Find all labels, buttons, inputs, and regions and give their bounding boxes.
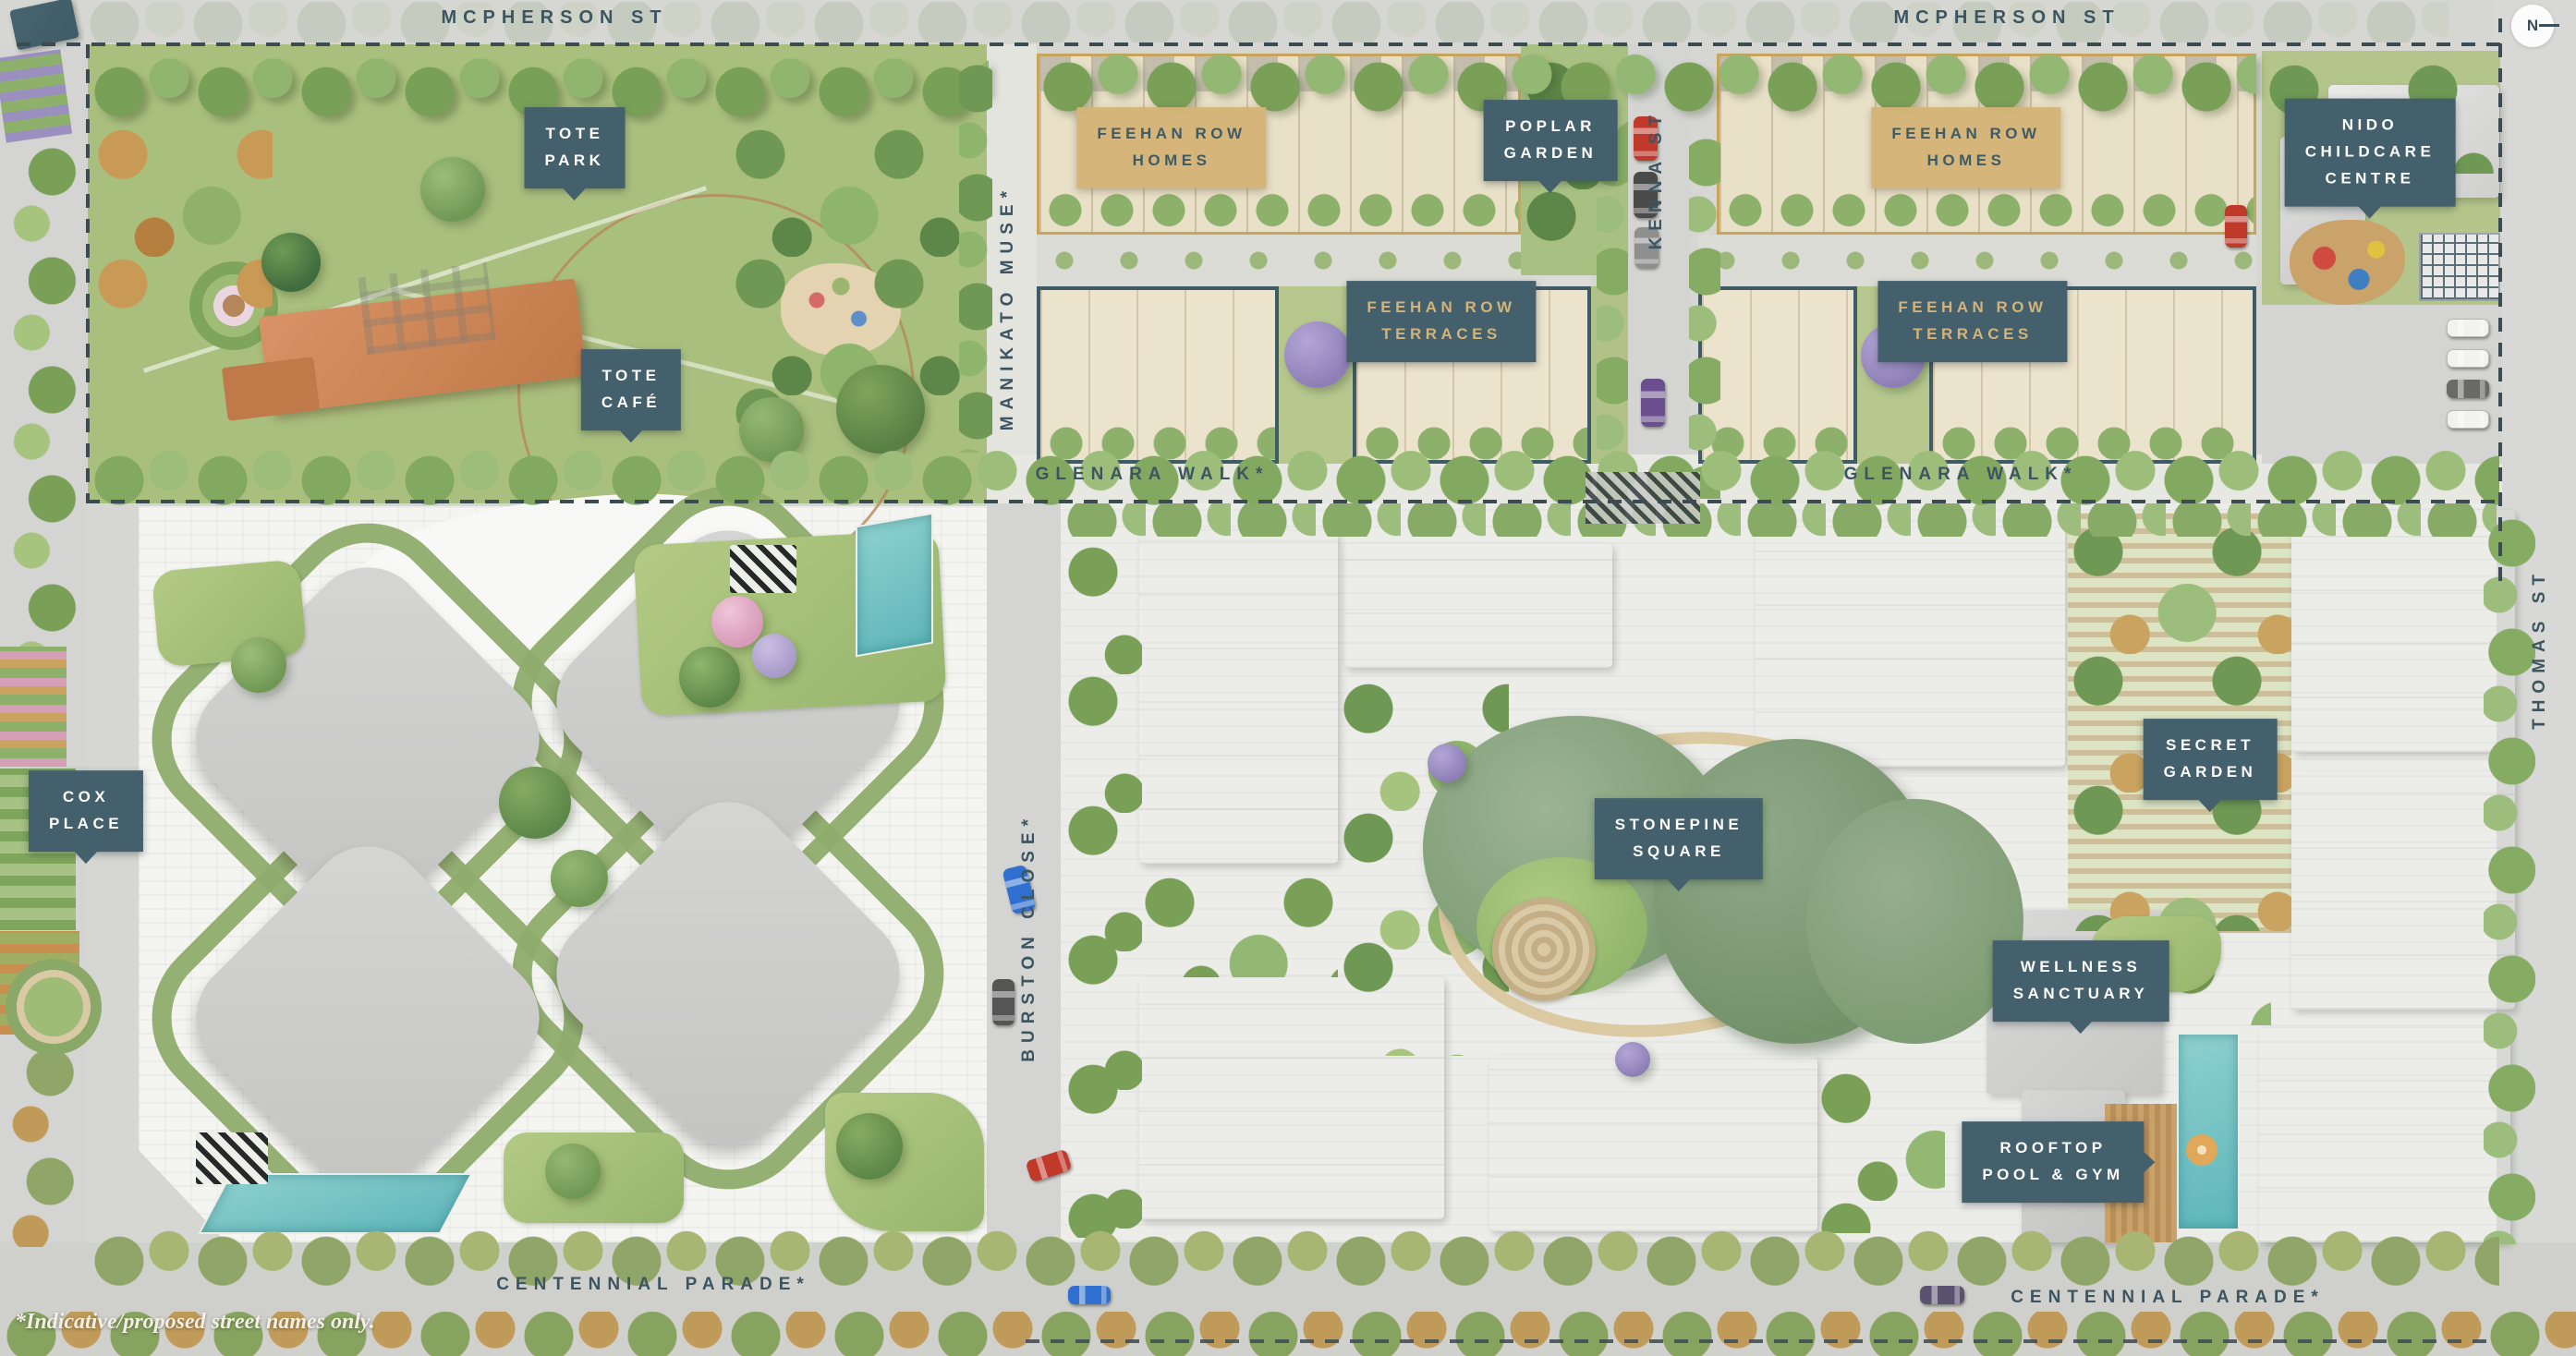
- street-mcpherson-right: MCPHERSON ST: [1893, 7, 2120, 29]
- cox-flower-garden: [0, 647, 67, 767]
- label-feehan-homes-left: FEEHAN ROW HOMES: [1076, 107, 1266, 188]
- thomas-street-trees: [2484, 510, 2535, 1244]
- car-dark: [992, 979, 1015, 1025]
- street-names-footnote: *Indicative/proposed street names only.: [15, 1310, 375, 1335]
- label-nido-childcare: NIDO CHILDCARE CENTRE: [2285, 99, 2456, 207]
- boundary-dash-top: [17, 42, 2500, 46]
- label-feehan-homes-right: FEEHAN ROW HOMES: [1871, 107, 2060, 188]
- kenna-trees-east: [1689, 129, 1720, 499]
- pergola-north: [730, 545, 796, 593]
- campus-building-1: [1139, 531, 1338, 864]
- kenna-trees-west: [1597, 129, 1628, 499]
- label-feehan-terraces-left: FEEHAN ROW TERRACES: [1346, 281, 1536, 362]
- courtyard-tree: [551, 850, 608, 907]
- car-purple: [1641, 379, 1665, 427]
- boundary-dash-left: [86, 44, 90, 502]
- park-tree: [420, 157, 485, 222]
- rooftop-pool: [2177, 1033, 2240, 1230]
- left-edge-trees: [7, 139, 89, 647]
- label-stonepine-square: STONEPINE SQUARE: [1595, 798, 1763, 879]
- centennial-south-tree-row: [0, 1312, 2576, 1356]
- nido-solar-panels: [2419, 233, 2500, 301]
- label-tote-cafe: TOTE CAFÉ: [581, 349, 681, 430]
- purple-shrub: [1428, 744, 1466, 782]
- jacaranda-tree: [1284, 321, 1351, 388]
- campus-building-5: [1756, 522, 2065, 767]
- compass-n-letter: N: [2527, 17, 2538, 35]
- car-red: [2225, 205, 2247, 248]
- courtyard-tree: [545, 1144, 601, 1199]
- courtyard-tree: [231, 637, 286, 693]
- purple-shrub: [1615, 1042, 1650, 1077]
- east-building-1: [2291, 510, 2515, 752]
- central-garden-west: [1139, 866, 1338, 977]
- courtyard-tree: [499, 767, 571, 839]
- label-cox-place: COX PLACE: [29, 770, 143, 852]
- street-glenara-left: GLENARA WALK*: [1036, 465, 1270, 485]
- street-thomas: THOMAS ST: [2530, 568, 2550, 730]
- street-centennial-left: CENTENNIAL PARADE*: [496, 1275, 810, 1295]
- left-edge-trees-south: [7, 1039, 85, 1247]
- backyard-trees: [1719, 184, 2254, 232]
- feehan-mews-left: [1037, 235, 1591, 286]
- feehan-terraces-left-a: [1037, 286, 1279, 464]
- purple-blossom-tree: [752, 634, 796, 678]
- backyard-trees: [1039, 184, 1518, 232]
- parked-car-white: [2447, 319, 2489, 337]
- planting-bed-top: [0, 49, 72, 142]
- palm-tree: [261, 233, 321, 292]
- feehan-mews-right: [1698, 235, 2256, 286]
- courtyard-tree: [836, 1113, 903, 1180]
- pink-blossom-tree: [711, 596, 763, 648]
- masterplan-page: { "map_title": "Residential development …: [0, 0, 2576, 1356]
- stonepine-canopy: [1806, 799, 2023, 1044]
- street-centennial-right: CENTENNIAL PARADE*: [2011, 1288, 2325, 1308]
- label-rooftop-pool-gym: ROOFTOP POOL & GYM: [1962, 1121, 2144, 1203]
- kenna-raised-crossing: [1586, 472, 1700, 524]
- east-building-2: [2291, 771, 2515, 1010]
- label-poplar-garden: POPLAR GARDEN: [1484, 100, 1618, 181]
- central-garden-south: [1816, 1062, 1945, 1233]
- swimming-pool-north: [856, 513, 933, 658]
- campus-north-tree-row: [1061, 503, 2497, 537]
- north-compass: N: [2511, 5, 2554, 47]
- cafe-terrace-furniture: [358, 262, 495, 355]
- burston-east-garden: [1063, 536, 1142, 1238]
- street-manikato-muse: MANIKATO MUSE*: [998, 185, 1018, 430]
- pool-umbrella: [2186, 1134, 2218, 1166]
- street-glenara-right: GLENARA WALK*: [1844, 465, 2078, 485]
- parked-car-dark: [2447, 380, 2489, 398]
- boundary-dash-glenara: [86, 500, 2499, 503]
- park-autumn-cluster: [92, 118, 273, 326]
- label-feehan-terraces-right: FEEHAN ROW TERRACES: [1877, 281, 2067, 362]
- pergola-south: [196, 1132, 268, 1184]
- centennial-north-tree-row: [88, 1229, 2499, 1288]
- glenara-walk-tree-row: [88, 449, 2499, 506]
- street-burston-close: BURSTON CLOSE*: [1019, 813, 1039, 1062]
- tote-cafe-annex: [222, 357, 320, 421]
- campus-building-4: [1489, 1056, 1817, 1231]
- park-tree: [836, 365, 925, 454]
- label-wellness-sanctuary: WELLNESS SANCTUARY: [1993, 940, 2169, 1022]
- street-mcpherson-left: MCPHERSON ST: [441, 7, 667, 29]
- corner-lawn-nw: [152, 559, 307, 668]
- feehan-terraces-right-c: [1698, 286, 1857, 464]
- car-dark: [1920, 1286, 1964, 1304]
- stonepine-playground-circles: [1492, 898, 1596, 1001]
- parked-car-white: [2447, 349, 2489, 368]
- street-kenna: KENNA ST: [1646, 109, 1667, 249]
- label-secret-garden: SECRET GARDEN: [2144, 719, 2278, 800]
- manikato-tree-row: [959, 55, 992, 453]
- label-tote-park: TOTE PARK: [525, 107, 626, 188]
- boundary-dash-right: [2498, 18, 2502, 591]
- boundary-dash-bottom-right: [1026, 1339, 2495, 1343]
- campus-building-2: [1344, 543, 1612, 668]
- east-building-3: [2259, 1027, 2510, 1242]
- car-blue: [1068, 1286, 1111, 1304]
- parked-car-white: [2447, 410, 2489, 429]
- cox-circular-lawn: [6, 959, 102, 1055]
- courtyard-tree: [679, 647, 740, 708]
